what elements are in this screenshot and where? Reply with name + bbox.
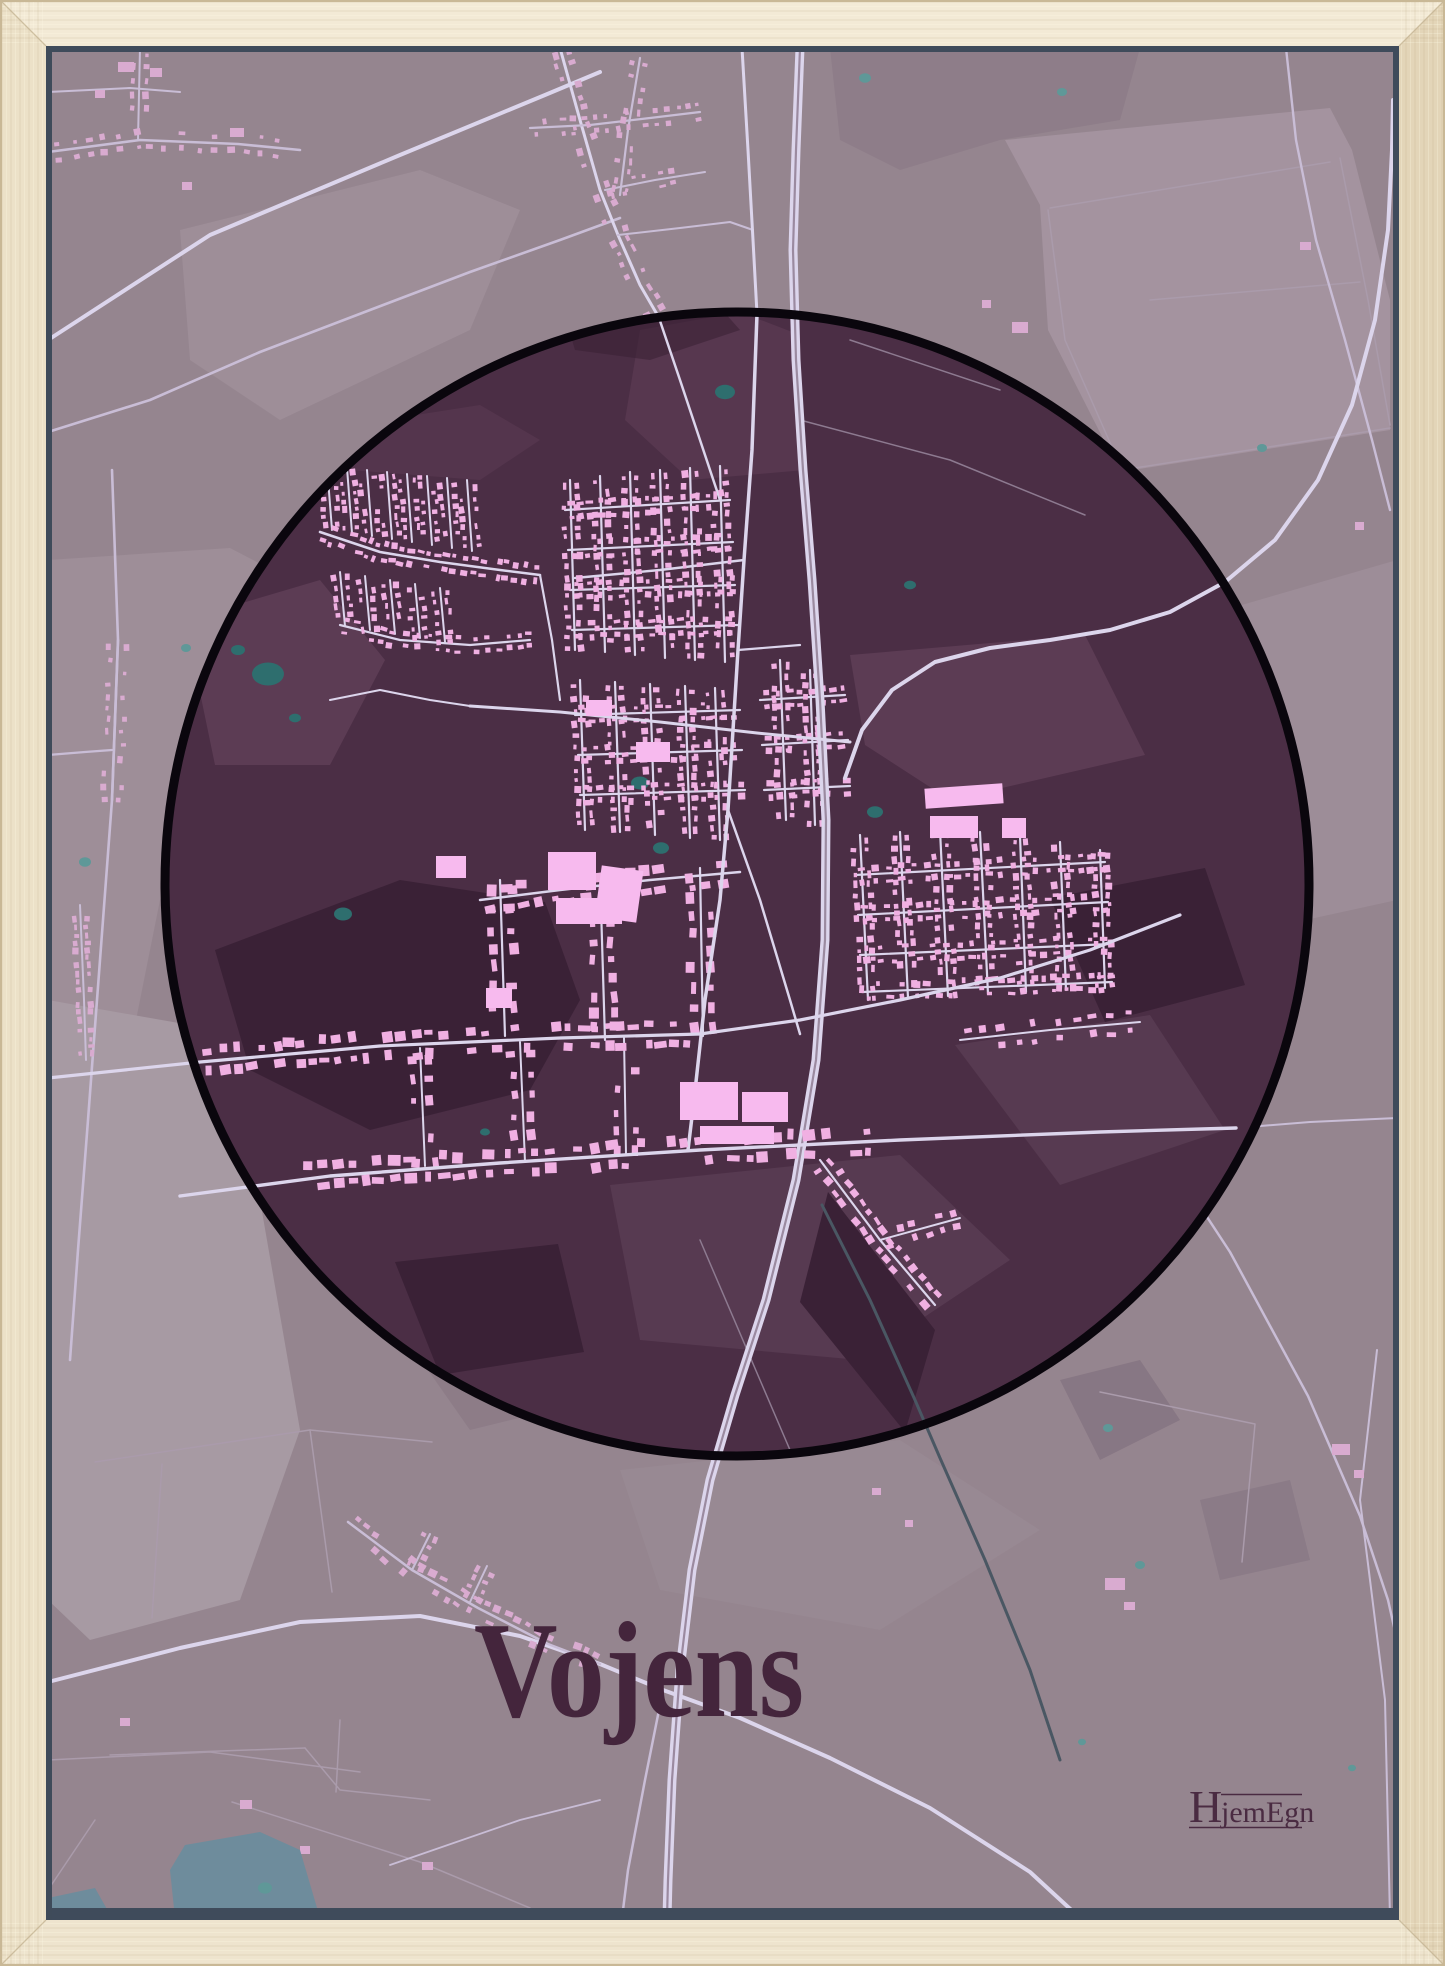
- brand-rest: jemEgn: [1220, 1796, 1314, 1829]
- brand-initial: H: [1189, 1781, 1222, 1832]
- poster-title: Vojens: [474, 1594, 804, 1746]
- framed-map-poster: Vojens H jemEgn: [0, 0, 1445, 1966]
